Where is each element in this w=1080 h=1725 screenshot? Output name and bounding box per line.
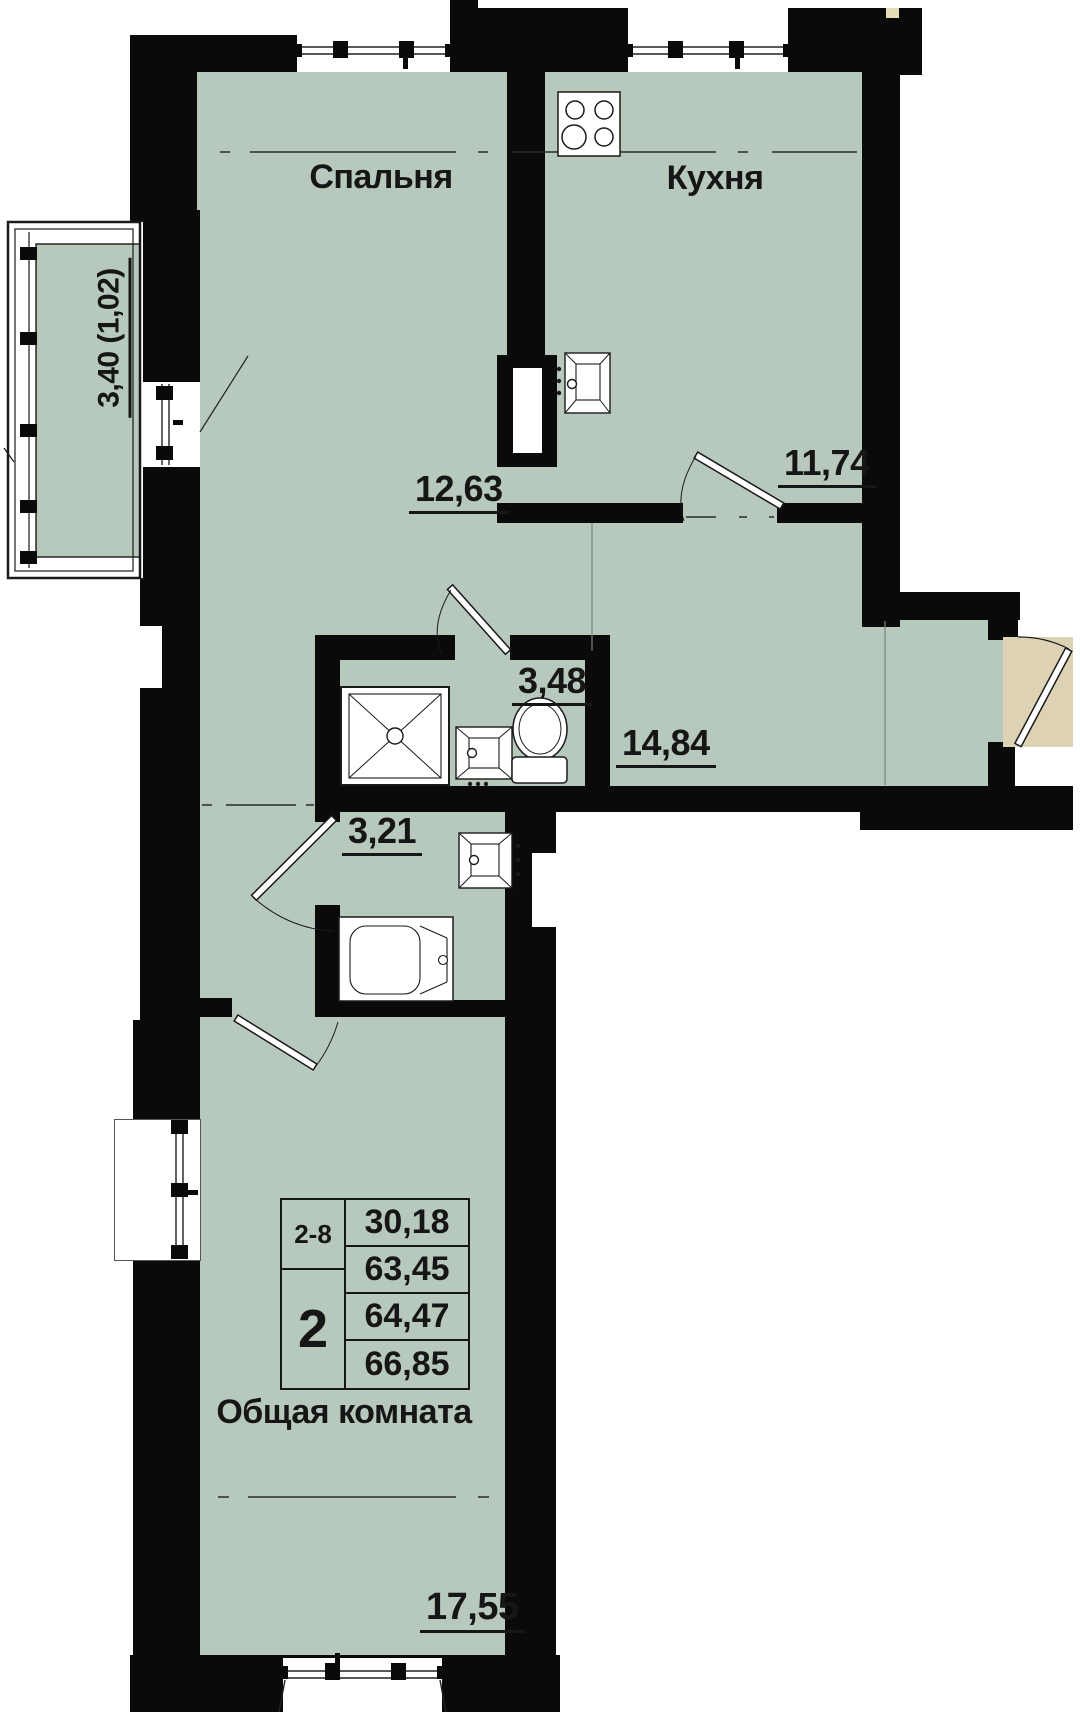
kitchen-window-bay [628, 0, 788, 72]
wall-top-kitchen-step [900, 8, 922, 75]
stamp-area-living: 30,18 [346, 1200, 468, 1247]
bedroom-window-bay [297, 0, 450, 72]
entry-jamb-bottom [988, 742, 1015, 790]
living-area-label: 17,55 [420, 1586, 525, 1633]
stamp-rooms-count: 2 [282, 1270, 344, 1388]
bathroom-area-label: 3,48 [512, 660, 592, 706]
bedroom-label: Спальня [301, 158, 461, 197]
wall-top-mid [450, 0, 478, 72]
wall-left-lower [133, 1020, 200, 1660]
bedroom-kitchen-door-panel [513, 368, 542, 453]
wall-left-upper [130, 35, 197, 222]
hallway-area-label: 14,84 [616, 722, 716, 768]
kitchen-area-label: 11,74 [778, 442, 876, 488]
entry-door-swing-area [1003, 637, 1073, 747]
wall-bathroom-left [315, 635, 340, 812]
left-wall-seam [140, 626, 162, 688]
living-bottom-window [283, 1658, 442, 1712]
wall-bathroom-top-right [510, 635, 610, 660]
stamp-area-total: 66,85 [346, 1341, 468, 1388]
bedroom-area-label: 12,63 [409, 468, 509, 514]
wall-bathroom-top-left [315, 635, 455, 660]
wall-wc-left-b [315, 905, 340, 1005]
kitchen-label: Кухня [640, 159, 790, 198]
wall-living-right [505, 812, 556, 1712]
top-right-marker [886, 8, 899, 18]
wall-living-door-stub [200, 998, 232, 1017]
wall-hallway-bottom-outer [860, 812, 1073, 830]
wall-bedroom-kitchen-divider [507, 72, 545, 355]
stamp-position-range: 2-8 [282, 1200, 344, 1270]
wc-area-label: 3,21 [342, 810, 422, 856]
living-side-window [115, 1120, 200, 1260]
wall-wc-left-a [315, 812, 340, 822]
wall-kitchen-right [862, 8, 900, 627]
stamp-area-2: 64,47 [346, 1294, 468, 1341]
balcony-dimension-label: 3,40 (1,02) [93, 258, 132, 418]
wall-kitchen-bottom-left [497, 503, 683, 523]
living-room-label: Общая комната [213, 1393, 475, 1432]
info-stamp: 2-8 2 30,18 63,45 64,47 66,85 [280, 1198, 470, 1390]
vent-shaft [532, 853, 556, 927]
stamp-area-1: 63,45 [346, 1247, 468, 1294]
wall-kitchen-bottom-right [777, 503, 862, 523]
wall-wc-bottom [315, 1000, 512, 1017]
floor-plan: Спальня Кухня Общая комната 12,63 11,74 … [0, 0, 1080, 1725]
wall-hallway-bottom [315, 786, 1073, 812]
balcony-window-opening [143, 382, 200, 467]
